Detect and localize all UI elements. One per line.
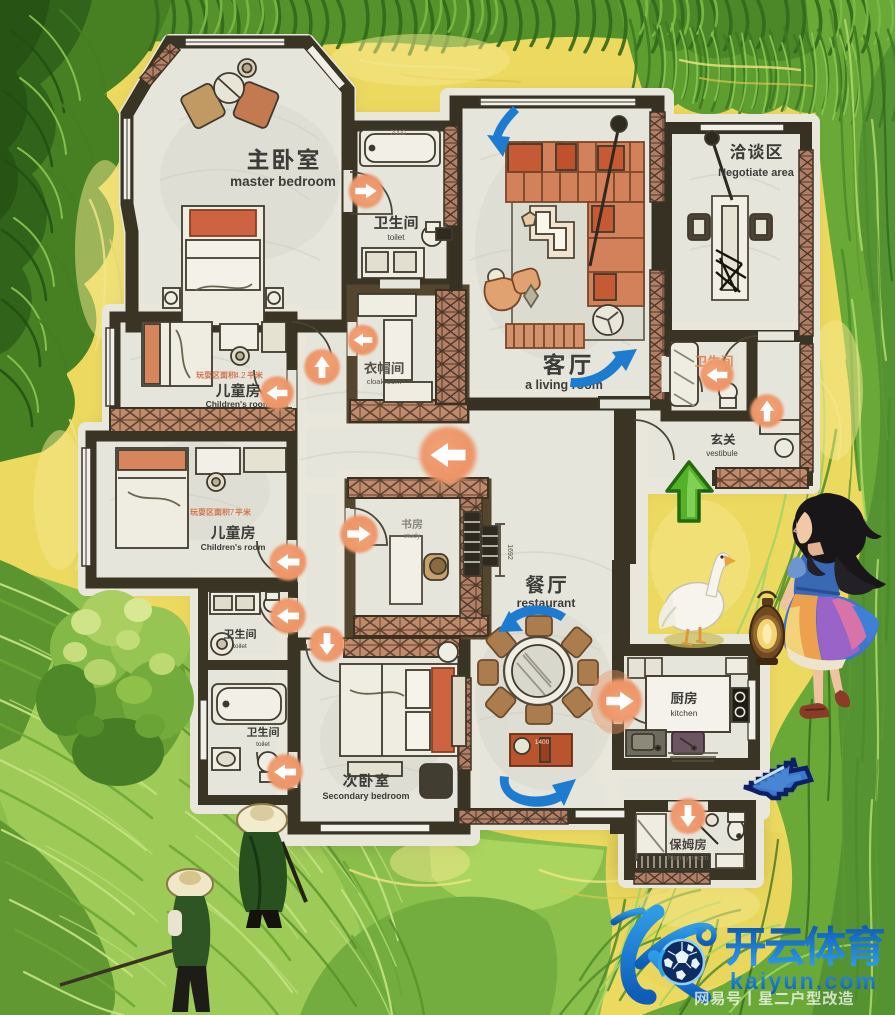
svg-text:toilet: toilet	[388, 233, 406, 242]
svg-text:Negotiate area: Negotiate area	[718, 167, 795, 179]
svg-text:cloakroom: cloakroom	[367, 377, 402, 386]
svg-text:toilet: toilet	[256, 741, 270, 748]
svg-text:4.2: 4.2	[234, 371, 246, 380]
svg-text:Children's room: Children's room	[201, 542, 266, 552]
svg-text:1400: 1400	[535, 739, 550, 746]
svg-text:7: 7	[230, 508, 235, 517]
svg-text:Nanny room: Nanny room	[668, 853, 709, 862]
svg-text:toilet: toilet	[233, 643, 247, 650]
svg-text:study: study	[404, 533, 421, 540]
svg-text:kitchen: kitchen	[671, 708, 698, 718]
svg-text:vestibule: vestibule	[706, 449, 738, 458]
svg-text:Secondary bedroom: Secondary bedroom	[322, 791, 409, 801]
svg-text:1692: 1692	[506, 544, 513, 560]
svg-text:2000: 2000	[390, 130, 406, 137]
svg-text:master bedroom: master bedroom	[230, 174, 336, 189]
svg-text:Children's room: Children's room	[206, 399, 271, 409]
